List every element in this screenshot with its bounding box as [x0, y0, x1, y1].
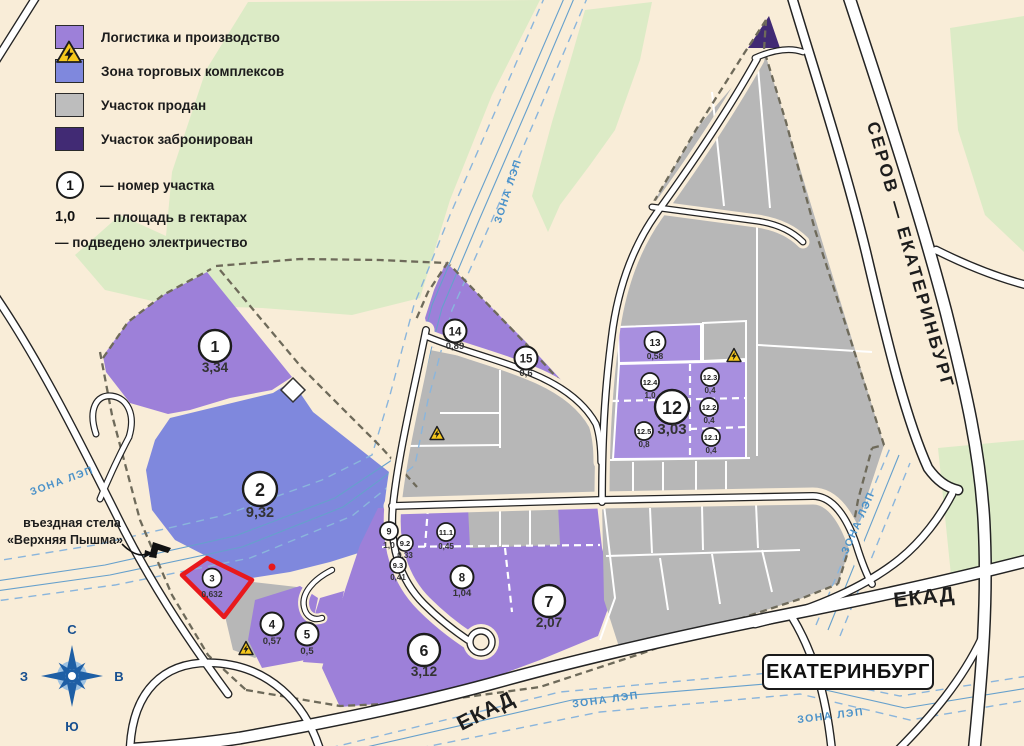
legend: Логистика и производство Зона торговых к…: [55, 25, 325, 260]
svg-text:9.2: 9.2: [400, 539, 410, 548]
reserved-swatch: [55, 127, 84, 151]
svg-text:7: 7: [545, 594, 554, 611]
sold-swatch: [55, 93, 84, 117]
svg-text:5: 5: [304, 630, 311, 642]
svg-text:1,04: 1,04: [453, 588, 472, 599]
stela-label-line1: въездная стела: [23, 516, 122, 530]
legend-item-trade: Зона торговых комплексов: [55, 59, 325, 83]
svg-text:12.3: 12.3: [703, 373, 718, 382]
plot-label-2: 2 9,32: [243, 472, 277, 521]
svg-text:0,4: 0,4: [705, 446, 717, 455]
legend-electricity-label: — подведено электричество: [55, 235, 248, 250]
plot-label-13: 13 0,58: [645, 332, 666, 362]
map-canvas: 1 3,34 2 9,32 3 0,632 4 0,57 5 0,5 6 3,1…: [0, 0, 1024, 746]
svg-text:14: 14: [449, 327, 462, 339]
plot-label-8: 8 1,04: [451, 566, 474, 600]
svg-text:0,8: 0,8: [638, 440, 650, 449]
legend-item-logistics: Логистика и производство: [55, 25, 325, 49]
svg-text:0,57: 0,57: [263, 636, 282, 647]
plot-label-9-2: 9.2 0,33: [397, 535, 413, 560]
svg-text:0,45: 0,45: [438, 542, 454, 551]
svg-text:12.1: 12.1: [704, 433, 719, 442]
legend-item-reserved: Участок забронирован: [55, 127, 325, 151]
svg-text:12: 12: [662, 398, 682, 418]
svg-text:2,07: 2,07: [536, 615, 562, 630]
plot-label-9-3: 9.3 0,41: [390, 557, 406, 582]
svg-text:12.2: 12.2: [702, 403, 717, 412]
compass-south-label: Ю: [65, 719, 78, 734]
svg-text:0,632: 0,632: [201, 589, 223, 599]
power-zone-label: ЗОНА ЛЭП: [492, 157, 524, 225]
svg-text:0,4: 0,4: [703, 416, 715, 425]
red-dot-marker: [269, 564, 276, 571]
svg-text:15: 15: [520, 354, 533, 366]
compass-east-label: В: [114, 669, 123, 684]
svg-text:0,89: 0,89: [446, 341, 465, 352]
svg-text:13: 13: [649, 338, 661, 349]
svg-text:3: 3: [209, 574, 214, 585]
compass-north-label: С: [67, 622, 77, 637]
sold-middle-block: [396, 350, 600, 505]
plot-area-sample: 1,0: [55, 209, 82, 225]
svg-text:11.1: 11.1: [439, 528, 453, 537]
svg-text:1: 1: [211, 339, 220, 356]
svg-text:3,03: 3,03: [657, 421, 686, 438]
legend-electricity: — подведено электричество: [55, 235, 325, 250]
power-zone-label: ЗОНА ЛЭП: [572, 689, 640, 710]
stela-marker: [149, 542, 171, 558]
legend-item-label: Логистика и производство: [101, 30, 280, 45]
svg-text:9.3: 9.3: [393, 561, 403, 570]
plot-label-7: 7 2,07: [533, 585, 565, 630]
legend-item-label: Участок продан: [101, 98, 206, 113]
svg-text:0,4: 0,4: [704, 386, 716, 395]
svg-text:12.4: 12.4: [643, 378, 658, 387]
plot-label-12: 12 3,03: [655, 390, 689, 438]
sold-cell-ne13: [703, 321, 746, 361]
plot-label-6: 6 3,12: [408, 634, 440, 679]
plot-number-icon: 1: [56, 171, 84, 199]
city-sign: ЕКАТЕРИНБУРГ: [762, 654, 934, 690]
svg-text:4: 4: [269, 620, 276, 632]
stela-label-line2: «Верхняя Пышма»: [7, 533, 123, 547]
svg-text:0,41: 0,41: [390, 573, 406, 582]
plot-label-11-1: 11.1 0,45: [437, 523, 455, 551]
svg-text:9,32: 9,32: [246, 505, 274, 521]
svg-text:0,6: 0,6: [519, 368, 532, 379]
power-zone-label: ЗОНА ЛЭП: [28, 464, 95, 498]
svg-text:0,58: 0,58: [647, 351, 664, 361]
compass-rose: С Ю З В: [20, 622, 124, 734]
plot-label-1: 1 3,34: [199, 330, 231, 375]
plot-label-3: 3 0,632: [201, 569, 223, 600]
legend-area-label: — площадь в гектарах: [96, 210, 247, 225]
svg-text:8: 8: [459, 573, 466, 585]
compass-west-label: З: [20, 669, 28, 684]
svg-text:3,12: 3,12: [411, 664, 437, 679]
plot-label-4: 4 0,57: [261, 613, 284, 648]
legend-number-label: — номер участка: [100, 178, 214, 193]
legend-plot-number: 1 — номер участка: [55, 171, 325, 199]
svg-text:12.5: 12.5: [637, 427, 652, 436]
svg-text:9: 9: [386, 527, 391, 537]
svg-text:3,34: 3,34: [202, 360, 229, 375]
electricity-icon: [55, 39, 83, 65]
svg-text:2: 2: [255, 480, 265, 500]
svg-text:1,0: 1,0: [383, 540, 395, 550]
plot-label-14: 14 0,89: [444, 320, 467, 353]
svg-text:1,0: 1,0: [644, 391, 656, 400]
legend-item-label: Зона торговых комплексов: [101, 64, 284, 79]
svg-text:0,5: 0,5: [300, 646, 314, 657]
svg-text:6: 6: [420, 643, 429, 660]
legend-item-sold: Участок продан: [55, 93, 325, 117]
legend-item-label: Участок забронирован: [101, 132, 253, 147]
legend-plot-area: 1,0 — площадь в гектарах: [55, 209, 325, 225]
